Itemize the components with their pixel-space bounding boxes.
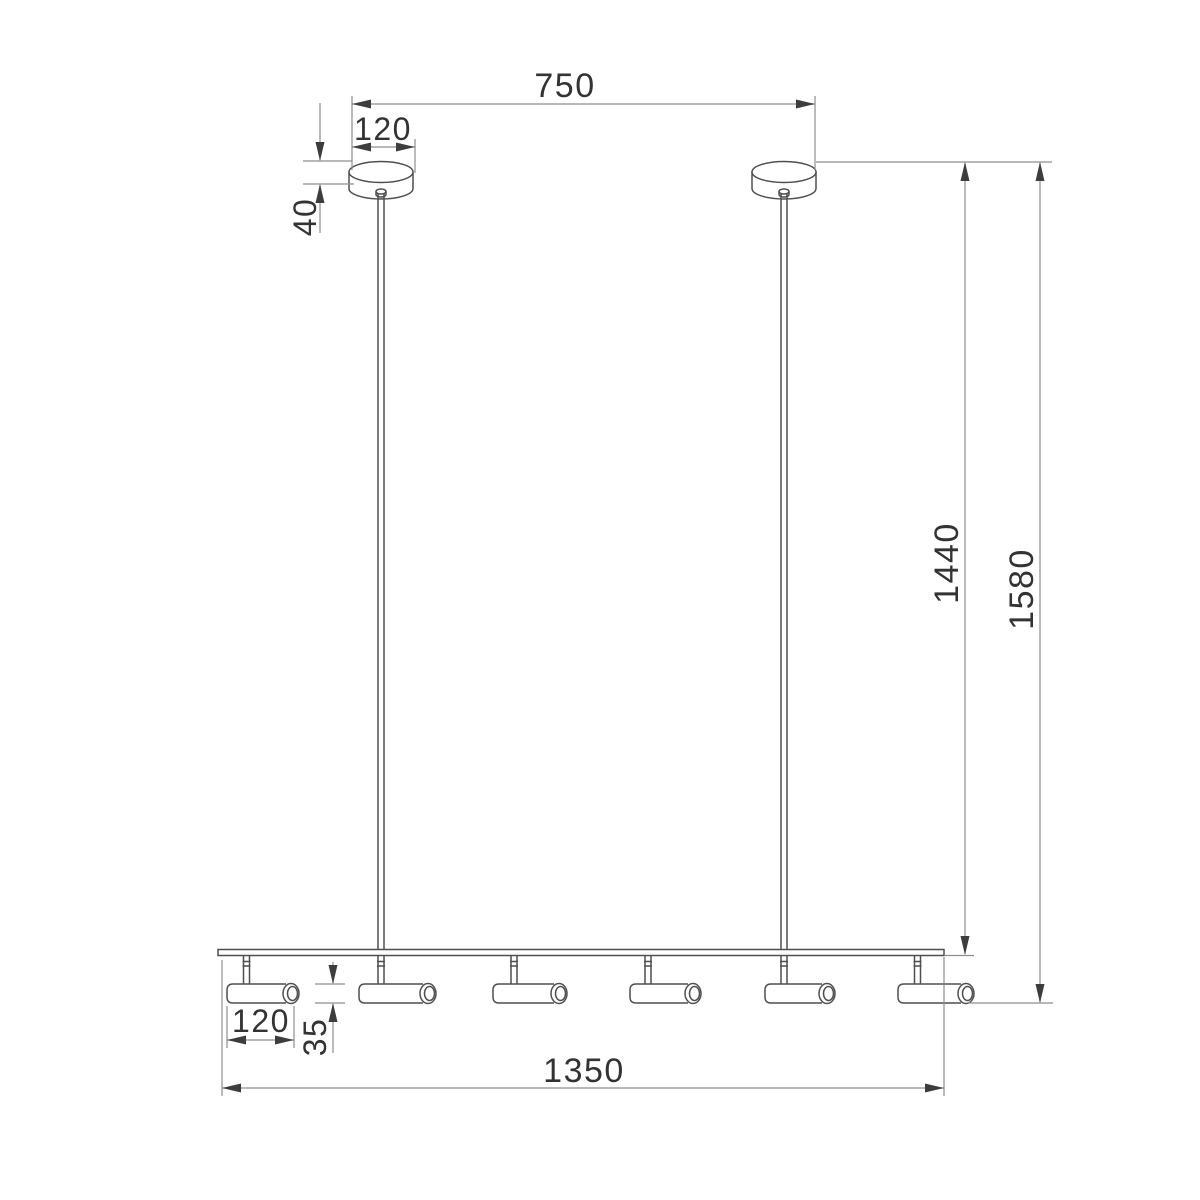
spotlight-1 — [227, 956, 299, 1004]
spotlight-6 — [898, 956, 974, 1004]
dimension-750 — [352, 96, 815, 170]
dim-label-drop-to-track: 1440 — [930, 522, 964, 604]
dim-label-canopy-height: 40 — [289, 198, 321, 237]
dim-label-overall-drop: 1580 — [1005, 548, 1039, 630]
canopy-right — [752, 162, 816, 200]
spotlight-3 — [493, 956, 567, 1004]
canopy-left — [349, 162, 413, 200]
dim-label-span-canopies: 750 — [534, 69, 595, 103]
suspension-rod-right — [780, 194, 788, 984]
dim-label-canopy-diameter: 120 — [354, 113, 412, 145]
track-bar — [218, 950, 944, 956]
dim-label-spotlight-diameter: 35 — [299, 1018, 331, 1057]
spotlight-4 — [630, 956, 701, 1004]
technical-drawing: 750 120 40 1440 1580 120 35 1350 — [0, 0, 1200, 1200]
dim-label-track-length: 1350 — [543, 1054, 625, 1088]
spotlight-5 — [765, 984, 835, 1004]
spotlight-2 — [359, 984, 436, 1004]
suspension-rod-left — [377, 194, 385, 984]
dim-label-spotlight-length: 120 — [232, 1005, 290, 1037]
